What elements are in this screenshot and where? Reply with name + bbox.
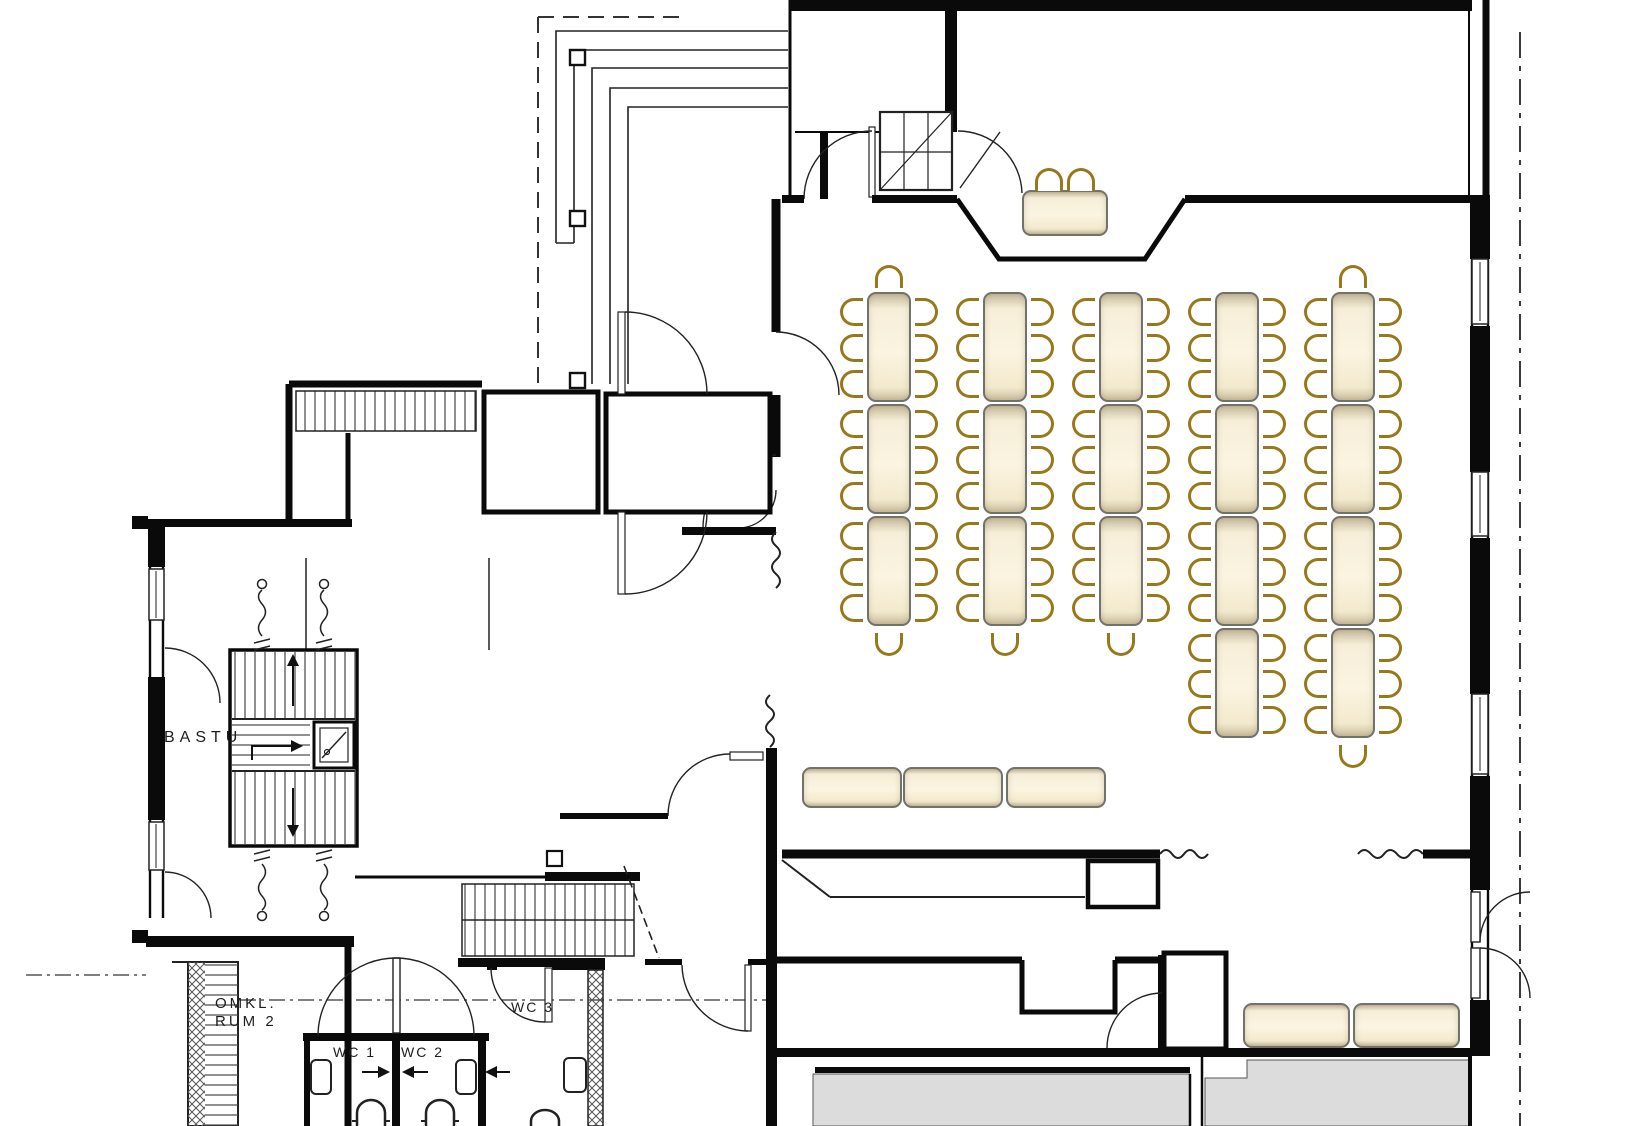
dining-table[interactable]: [1099, 404, 1143, 514]
chair[interactable]: [836, 369, 866, 399]
chair[interactable]: [912, 409, 942, 439]
chair[interactable]: [1184, 633, 1214, 663]
chair[interactable]: [1184, 557, 1214, 587]
chair[interactable]: [1068, 409, 1098, 439]
chair[interactable]: [874, 261, 904, 291]
chair[interactable]: [952, 445, 982, 475]
chair[interactable]: [952, 333, 982, 363]
chair[interactable]: [1338, 261, 1368, 291]
chair[interactable]: [1068, 521, 1098, 551]
chair[interactable]: [1144, 409, 1174, 439]
bench-table[interactable]: [1243, 1003, 1350, 1048]
chair[interactable]: [1260, 297, 1290, 327]
chair[interactable]: [1376, 521, 1406, 551]
chair[interactable]: [952, 557, 982, 587]
dining-table[interactable]: [1331, 516, 1375, 626]
chair[interactable]: [1300, 633, 1330, 663]
chair[interactable]: [1376, 369, 1406, 399]
chair[interactable]: [1184, 521, 1214, 551]
chair[interactable]: [912, 481, 942, 511]
dining-table[interactable]: [1099, 516, 1143, 626]
dining-table[interactable]: [1099, 292, 1143, 402]
chair[interactable]: [1028, 593, 1058, 623]
bench-table[interactable]: [1006, 767, 1106, 808]
dining-table[interactable]: [867, 292, 911, 402]
chair[interactable]: [1376, 445, 1406, 475]
chair[interactable]: [1338, 742, 1368, 772]
chair[interactable]: [1260, 481, 1290, 511]
chair[interactable]: [1068, 369, 1098, 399]
chair[interactable]: [1028, 369, 1058, 399]
chair[interactable]: [1184, 297, 1214, 327]
chair[interactable]: [836, 409, 866, 439]
bench-table[interactable]: [802, 767, 902, 808]
chair[interactable]: [1260, 593, 1290, 623]
chair[interactable]: [1028, 297, 1058, 327]
chair[interactable]: [1260, 445, 1290, 475]
chair[interactable]: [1068, 557, 1098, 587]
dining-table[interactable]: [983, 292, 1027, 402]
dining-table[interactable]: [867, 404, 911, 514]
chair[interactable]: [1184, 409, 1214, 439]
chair[interactable]: [912, 557, 942, 587]
chair[interactable]: [1144, 369, 1174, 399]
chair[interactable]: [1068, 481, 1098, 511]
chair[interactable]: [1260, 369, 1290, 399]
chair[interactable]: [912, 521, 942, 551]
chair[interactable]: [1376, 333, 1406, 363]
head-table-chair[interactable]: [1034, 164, 1064, 194]
chair[interactable]: [1300, 369, 1330, 399]
chair[interactable]: [1144, 593, 1174, 623]
dining-table[interactable]: [1215, 292, 1259, 402]
chair[interactable]: [1144, 481, 1174, 511]
chair[interactable]: [1184, 333, 1214, 363]
bench-table[interactable]: [903, 767, 1003, 808]
dining-table[interactable]: [1331, 404, 1375, 514]
dining-table[interactable]: [1215, 404, 1259, 514]
chair[interactable]: [1144, 333, 1174, 363]
chair[interactable]: [1028, 521, 1058, 551]
chair[interactable]: [1260, 521, 1290, 551]
chair[interactable]: [836, 481, 866, 511]
chair[interactable]: [912, 369, 942, 399]
chair[interactable]: [1376, 669, 1406, 699]
chair[interactable]: [1300, 333, 1330, 363]
chair[interactable]: [1376, 409, 1406, 439]
dining-table[interactable]: [983, 516, 1027, 626]
chair[interactable]: [952, 481, 982, 511]
dining-table[interactable]: [867, 516, 911, 626]
chair[interactable]: [1260, 669, 1290, 699]
chair[interactable]: [1376, 593, 1406, 623]
chair[interactable]: [1376, 297, 1406, 327]
chair[interactable]: [1260, 409, 1290, 439]
chair[interactable]: [1376, 557, 1406, 587]
chair[interactable]: [1300, 409, 1330, 439]
chair[interactable]: [1028, 481, 1058, 511]
chair[interactable]: [836, 445, 866, 475]
chair[interactable]: [1300, 557, 1330, 587]
chair[interactable]: [1376, 481, 1406, 511]
head-table[interactable]: [1022, 190, 1108, 236]
chair[interactable]: [1144, 521, 1174, 551]
dining-table[interactable]: [1215, 628, 1259, 738]
chair[interactable]: [1300, 445, 1330, 475]
chair[interactable]: [836, 297, 866, 327]
chair[interactable]: [952, 409, 982, 439]
head-table-chair[interactable]: [1066, 164, 1096, 194]
chair[interactable]: [874, 630, 904, 660]
floor-plan-canvas: BASTU OMKL. RUM 2 WC 1 WC 2 WC 3: [0, 0, 1628, 1126]
chair[interactable]: [1184, 445, 1214, 475]
chair[interactable]: [1144, 445, 1174, 475]
chair[interactable]: [1184, 705, 1214, 735]
dining-table[interactable]: [1331, 292, 1375, 402]
dining-table[interactable]: [983, 404, 1027, 514]
chair[interactable]: [1184, 481, 1214, 511]
chair[interactable]: [1376, 633, 1406, 663]
chair[interactable]: [1184, 669, 1214, 699]
dining-table[interactable]: [1331, 628, 1375, 738]
chair[interactable]: [1300, 481, 1330, 511]
chair[interactable]: [1300, 297, 1330, 327]
chair[interactable]: [1068, 593, 1098, 623]
chair[interactable]: [836, 333, 866, 363]
chair[interactable]: [1260, 633, 1290, 663]
chair[interactable]: [912, 445, 942, 475]
chair[interactable]: [912, 297, 942, 327]
chair[interactable]: [1300, 521, 1330, 551]
chair[interactable]: [952, 593, 982, 623]
chair[interactable]: [1260, 705, 1290, 735]
chair[interactable]: [952, 521, 982, 551]
chair[interactable]: [836, 593, 866, 623]
chair[interactable]: [1184, 369, 1214, 399]
bench-table[interactable]: [1353, 1003, 1460, 1048]
chair[interactable]: [1300, 593, 1330, 623]
chair[interactable]: [912, 593, 942, 623]
chair[interactable]: [1260, 557, 1290, 587]
chair[interactable]: [1028, 445, 1058, 475]
chair[interactable]: [1300, 669, 1330, 699]
chair[interactable]: [1068, 297, 1098, 327]
chair[interactable]: [836, 557, 866, 587]
chair[interactable]: [1144, 557, 1174, 587]
chair[interactable]: [836, 521, 866, 551]
dining-table[interactable]: [1215, 516, 1259, 626]
seating-layer: [0, 0, 1628, 1126]
chair[interactable]: [912, 333, 942, 363]
chair[interactable]: [1300, 705, 1330, 735]
chair[interactable]: [1184, 593, 1214, 623]
chair[interactable]: [1144, 297, 1174, 327]
chair[interactable]: [1376, 705, 1406, 735]
chair[interactable]: [1260, 333, 1290, 363]
chair[interactable]: [1068, 333, 1098, 363]
chair[interactable]: [1028, 333, 1058, 363]
chair[interactable]: [952, 369, 982, 399]
chair[interactable]: [1068, 445, 1098, 475]
chair[interactable]: [1028, 409, 1058, 439]
chair[interactable]: [1106, 630, 1136, 660]
chair[interactable]: [990, 630, 1020, 660]
chair[interactable]: [1028, 557, 1058, 587]
chair[interactable]: [952, 297, 982, 327]
